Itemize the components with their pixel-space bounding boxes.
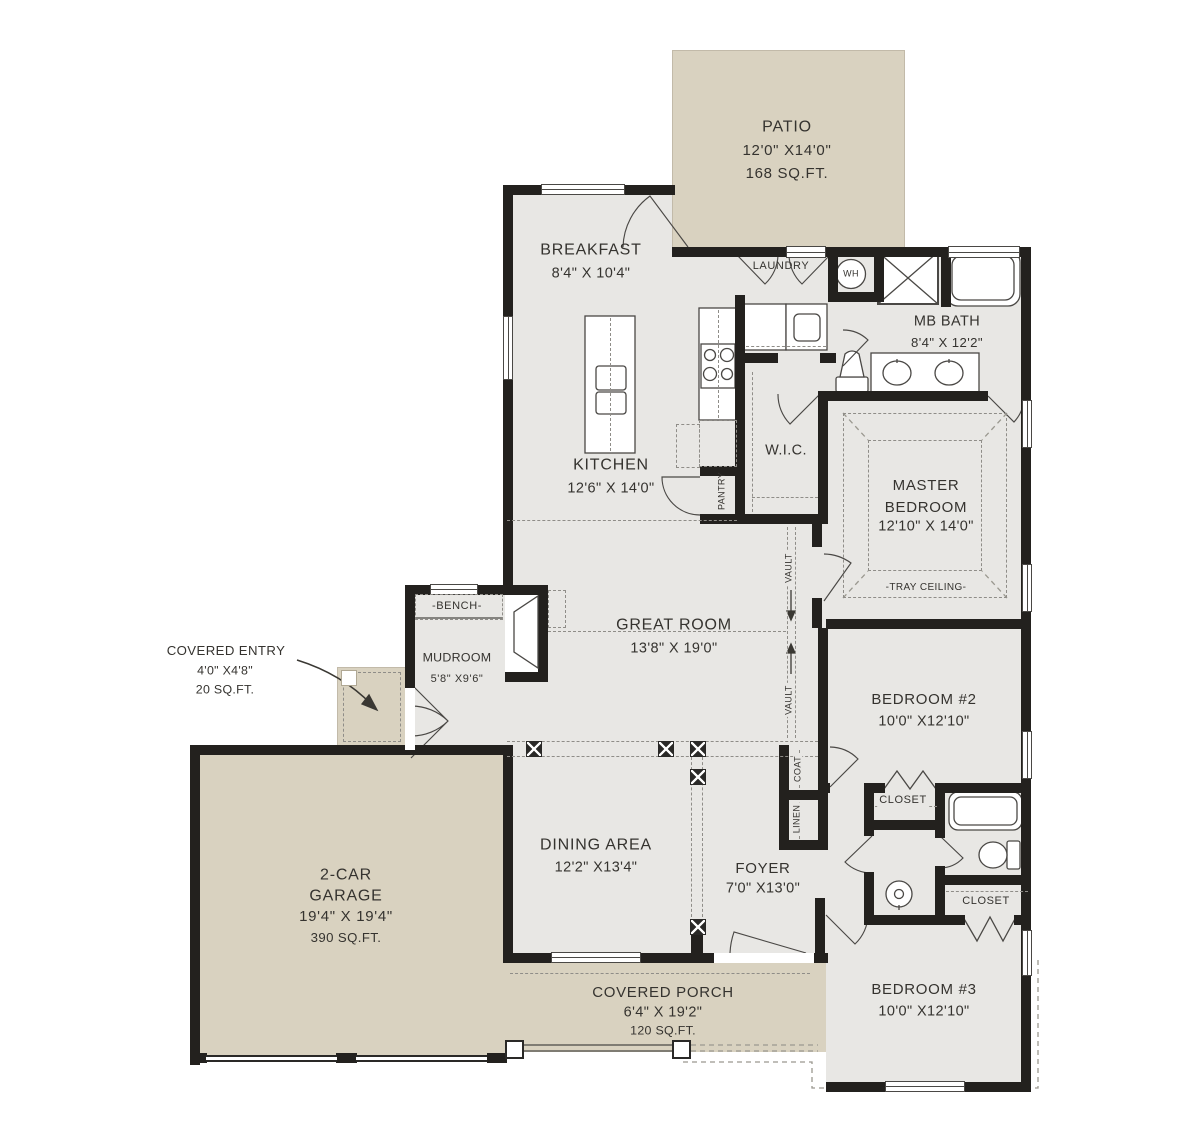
wall	[503, 745, 513, 963]
window	[1022, 930, 1032, 976]
wall	[190, 1053, 207, 1063]
fireplace-builtin	[505, 585, 548, 682]
wall	[487, 1053, 507, 1063]
wall	[818, 628, 828, 850]
vault-label-lower: VAULT	[784, 683, 793, 717]
kitchen-dims: 12'6" X 14'0"	[567, 481, 654, 496]
wall	[405, 585, 415, 689]
master-bedroom-label-2: BEDROOM	[885, 500, 967, 516]
garage-dims: 19'4" X 19'4"	[299, 909, 393, 925]
master-bedroom-dims: 12'10" X 14'0"	[878, 519, 974, 534]
wall	[941, 257, 951, 307]
closet-rod	[946, 891, 1028, 892]
laundry-label: LAUNDRY	[753, 261, 810, 273]
breakfast-label: BREAKFAST	[540, 243, 641, 260]
wall	[779, 790, 828, 800]
wall	[1014, 915, 1031, 925]
linen-label: LINEN	[792, 803, 801, 836]
door-threshold	[405, 688, 415, 750]
column	[690, 769, 706, 785]
covered-entry-area-label: 20 SQ.FT.	[196, 683, 254, 696]
porch-column	[505, 1040, 524, 1059]
covered-porch-area-label: 120 SQ.FT.	[630, 1024, 696, 1037]
wall	[735, 353, 778, 363]
window	[1022, 400, 1032, 448]
wall	[812, 521, 822, 547]
tray-ceiling-note: -TRAY CEILING-	[886, 583, 967, 594]
breakfast-dims: 8'4" X 10'4"	[552, 266, 631, 281]
vault-label-upper: VAULT	[784, 551, 793, 585]
bedroom2-closet-label: CLOSET	[877, 795, 929, 807]
wall	[864, 872, 874, 925]
wall	[190, 745, 507, 755]
bedroom3-label: BEDROOM #3	[871, 982, 976, 998]
wall	[779, 840, 828, 850]
great-room-dims: 13'8" X 19'0"	[630, 641, 717, 656]
wall	[818, 391, 828, 521]
window	[1022, 564, 1032, 612]
entry-post	[341, 670, 357, 686]
window	[786, 246, 826, 258]
mb-bath-label: MB BATH	[914, 314, 980, 329]
garage-label-2: GARAGE	[309, 889, 382, 906]
wall	[826, 391, 988, 401]
washer-front	[746, 346, 826, 347]
patio-dims: 12'0" X14'0"	[742, 143, 831, 159]
kitchen-label: KITCHEN	[573, 458, 649, 475]
foyer-label: FOYER	[735, 861, 790, 877]
door-threshold	[714, 953, 814, 963]
covered-entry-label: COVERED ENTRY	[167, 644, 286, 658]
window	[503, 316, 513, 380]
wic-shelving	[752, 497, 818, 498]
covered-porch-label: COVERED PORCH	[592, 985, 734, 1001]
bedroom3-closet-label: CLOSET	[960, 896, 1012, 908]
ceiling-break	[507, 520, 737, 521]
wall	[691, 935, 703, 955]
window	[541, 184, 625, 195]
covered-entry-dims: 4'0" X4'8"	[197, 664, 253, 677]
dining-dims: 12'2" X13'4"	[555, 860, 638, 875]
wall	[874, 257, 884, 302]
column	[690, 741, 706, 757]
wall	[820, 353, 836, 363]
column	[658, 741, 674, 757]
mb-bath-dims: 8'4" X 12'2"	[911, 336, 983, 350]
wic-label: W.I.C.	[765, 443, 807, 458]
mudroom-label: MUDROOM	[423, 651, 492, 664]
bedroom2-dims: 10'0" X12'10"	[878, 714, 969, 729]
wall	[935, 783, 945, 838]
porch-edge	[510, 973, 810, 974]
wall	[871, 820, 943, 830]
mudroom-dims: 5'8" X9'6"	[431, 674, 484, 686]
wall	[812, 598, 822, 628]
cabinet-dashed	[699, 420, 737, 467]
dining-label: DINING AREA	[540, 838, 652, 855]
vault-edge	[795, 527, 796, 738]
patio-area: 168 SQ.FT.	[746, 166, 829, 182]
wall	[735, 466, 745, 514]
wall	[826, 619, 1031, 629]
window	[1022, 731, 1032, 779]
fridge-dashed	[676, 424, 700, 468]
garage-door	[206, 1055, 337, 1062]
garage-label-1: 2-CAR	[320, 868, 372, 885]
column	[526, 741, 542, 757]
wall	[503, 185, 513, 595]
water-heater-label: WH	[843, 269, 859, 278]
window	[885, 1081, 965, 1092]
column	[690, 919, 706, 935]
window	[948, 246, 1020, 258]
wall	[936, 783, 1031, 793]
wall	[190, 745, 200, 1065]
wall	[935, 866, 945, 915]
counter-line	[718, 310, 719, 418]
wall	[864, 915, 965, 925]
island-line	[610, 318, 611, 451]
porch-column	[672, 1040, 691, 1059]
patio-label: PATIO	[762, 120, 812, 137]
covered-porch-dims: 6'4" X 19'2"	[624, 1005, 703, 1020]
master-bedroom-label-1: MASTER	[893, 478, 960, 494]
floor-plan: PATIO 12'0" X14'0" 168 SQ.FT. BREAKFAST …	[0, 0, 1200, 1147]
bench-label: -BENCH-	[432, 601, 482, 613]
pantry-label: PANTRY	[717, 472, 726, 510]
garage-area-label: 390 SQ.FT.	[311, 931, 382, 945]
wall	[735, 295, 745, 353]
bedroom-wing-area	[826, 252, 1031, 1086]
great-room-label: GREAT ROOM	[616, 618, 732, 635]
wall	[735, 514, 828, 524]
wall	[941, 875, 1031, 885]
foyer-dims: 7'0" X13'0"	[726, 881, 800, 896]
bedroom2-label: BEDROOM #2	[871, 692, 976, 708]
wall	[815, 898, 825, 963]
wic-shelving	[752, 372, 753, 512]
bedroom3-dims: 10'0" X12'10"	[878, 1004, 969, 1019]
builtin-dashed	[548, 590, 566, 628]
coat-label: COAT	[793, 754, 802, 784]
garage-door	[356, 1055, 487, 1062]
window	[551, 952, 641, 963]
wall	[336, 1053, 357, 1063]
